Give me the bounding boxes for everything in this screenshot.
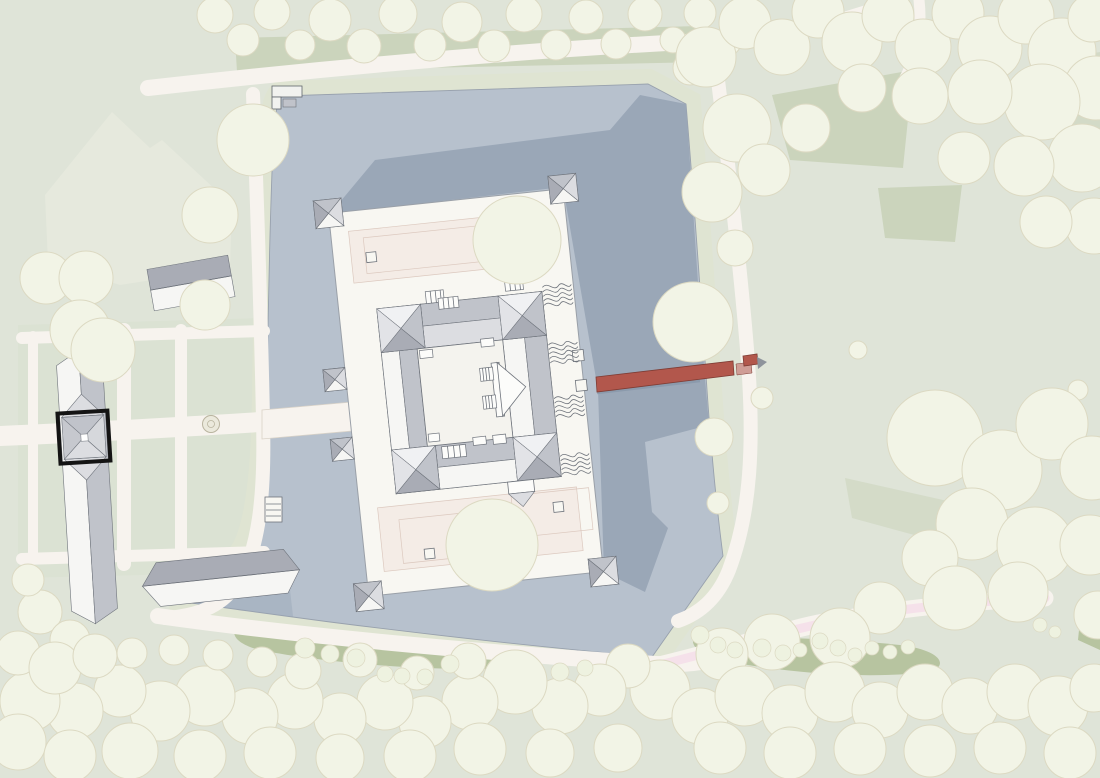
tree: [244, 727, 296, 778]
bush: [710, 637, 726, 653]
site-plan-page: [0, 0, 1100, 778]
lawn-patch-ne2: [878, 185, 962, 242]
abutment-post-south: [575, 379, 587, 391]
tree: [834, 723, 886, 775]
pavilion-northwest: [377, 304, 425, 352]
tree: [1020, 196, 1072, 248]
tree: [203, 640, 233, 670]
tree: [506, 0, 542, 32]
tree: [838, 64, 886, 112]
tree: [285, 653, 321, 689]
bush: [848, 648, 862, 662]
bush: [577, 660, 593, 676]
sluice-gate: [283, 99, 296, 107]
bush: [901, 640, 915, 654]
tree: [974, 722, 1026, 774]
sluice-quay: [272, 86, 302, 97]
tree: [541, 30, 571, 60]
tree: [695, 418, 733, 456]
chimney-south-east: [493, 434, 507, 444]
tree: [569, 0, 603, 34]
tree: [938, 132, 990, 184]
tree: [904, 725, 956, 777]
tree: [1044, 727, 1096, 778]
pavilion-southwest: [392, 445, 440, 493]
tree: [182, 187, 238, 243]
bush: [295, 638, 315, 658]
gate-tower-finial: [81, 434, 88, 441]
tree: [601, 29, 631, 59]
courtyard-step-nw: [419, 349, 433, 358]
site-plan-svg: [0, 0, 1100, 778]
tree: [59, 251, 113, 305]
bush: [1049, 626, 1061, 638]
tree: [694, 722, 746, 774]
tree: [217, 104, 289, 176]
courtyard-step-se: [473, 436, 487, 445]
tree: [29, 642, 81, 694]
tree: [12, 564, 44, 596]
tree: [988, 562, 1048, 622]
tree: [526, 729, 574, 777]
garden-gate-tower: [62, 415, 106, 459]
tree: [744, 614, 800, 670]
bush: [394, 668, 410, 684]
courtyard-step-ne: [480, 338, 494, 347]
tree: [379, 0, 417, 33]
bush: [691, 626, 709, 644]
tree: [102, 723, 158, 778]
tree: [254, 0, 290, 30]
tree: [682, 162, 742, 222]
bush: [883, 645, 897, 659]
tree: [717, 230, 753, 266]
jetty-steps: [265, 497, 282, 522]
tree: [782, 104, 830, 152]
tree: [923, 566, 987, 630]
tree: [442, 2, 482, 42]
courtyard-step-sw: [428, 433, 440, 442]
bush: [727, 642, 743, 658]
south-terrace-plinth-east: [553, 501, 564, 512]
bush: [551, 663, 569, 681]
tree: [71, 318, 135, 382]
tree: [414, 29, 446, 61]
bush: [865, 641, 879, 655]
bush: [1033, 618, 1047, 632]
tree: [316, 734, 364, 778]
corner-tower-northeast: [548, 173, 579, 204]
tree: [751, 387, 773, 409]
tree: [180, 280, 230, 330]
south-terrace-plinth-west: [424, 548, 435, 559]
bush: [321, 645, 339, 663]
bush: [441, 655, 459, 673]
bush: [812, 633, 828, 649]
bush: [417, 669, 433, 685]
tree: [285, 30, 315, 60]
tree: [73, 634, 117, 678]
fountain-basin: [203, 416, 220, 433]
tree: [174, 730, 226, 778]
moat-jetty: [265, 497, 282, 522]
tree: [159, 635, 189, 665]
tree: [849, 341, 867, 359]
gate-tower-south: [330, 437, 354, 461]
tree: [384, 730, 436, 778]
tree: [707, 492, 729, 514]
bush: [775, 645, 791, 661]
tree: [478, 30, 510, 62]
tree: [247, 647, 277, 677]
sluice-wing: [272, 97, 281, 109]
tree: [653, 282, 733, 362]
bridge-landing-red: [743, 354, 758, 366]
bush: [347, 649, 365, 667]
tree: [117, 638, 147, 668]
tree: [738, 144, 790, 196]
garden-parterre: [18, 318, 266, 578]
tree: [628, 0, 662, 31]
tree: [227, 24, 259, 56]
gate-tower-north: [323, 368, 347, 392]
bush: [793, 643, 807, 657]
pavilion-southeast: [513, 433, 561, 481]
tree: [594, 724, 642, 772]
corner-tower-southwest: [353, 581, 384, 612]
tree: [684, 0, 716, 29]
tree: [197, 0, 233, 33]
fountain: [203, 416, 220, 433]
tree: [44, 730, 96, 778]
pavilion-northeast: [498, 291, 546, 339]
tree: [446, 499, 538, 591]
north-terrace-plinth: [366, 252, 377, 263]
tree: [309, 0, 351, 41]
tree: [764, 727, 816, 778]
tree: [347, 29, 381, 63]
corner-tower-southeast: [588, 556, 619, 587]
bush: [830, 640, 846, 656]
bush: [753, 639, 771, 657]
tree: [473, 196, 561, 284]
bush: [377, 666, 393, 682]
tree: [454, 723, 506, 775]
tree: [892, 68, 948, 124]
tree: [994, 136, 1054, 196]
tree: [948, 60, 1012, 124]
corner-tower-northwest: [313, 198, 344, 229]
